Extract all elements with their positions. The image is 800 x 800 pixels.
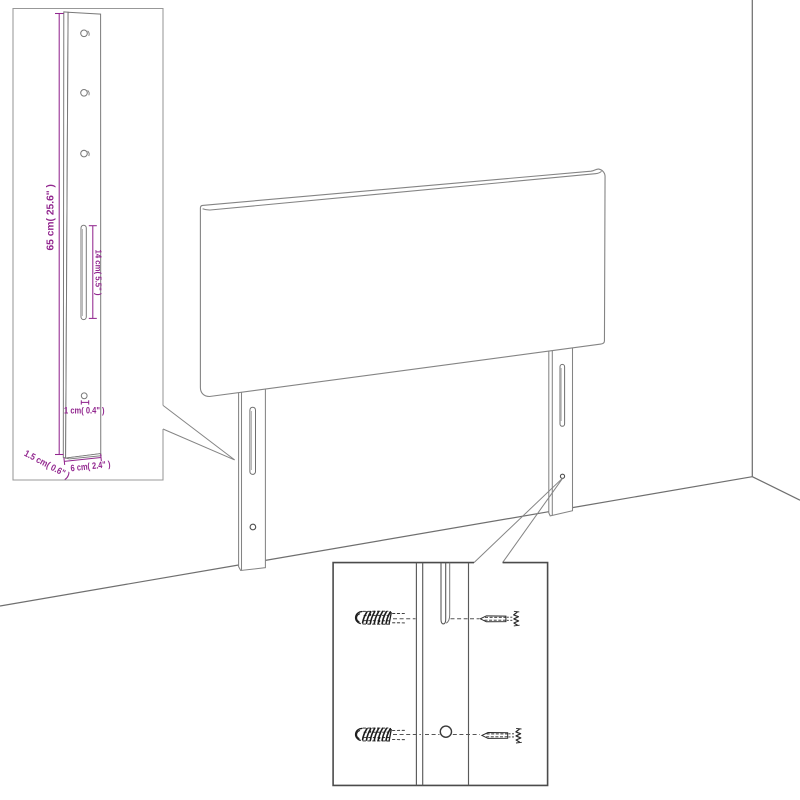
svg-text:65 cm( 25.6" ): 65 cm( 25.6" ) <box>45 184 56 251</box>
svg-text:14 cm( 5.5" ): 14 cm( 5.5" ) <box>93 250 102 296</box>
svg-text:1 cm( 0.4" ): 1 cm( 0.4" ) <box>64 405 105 415</box>
